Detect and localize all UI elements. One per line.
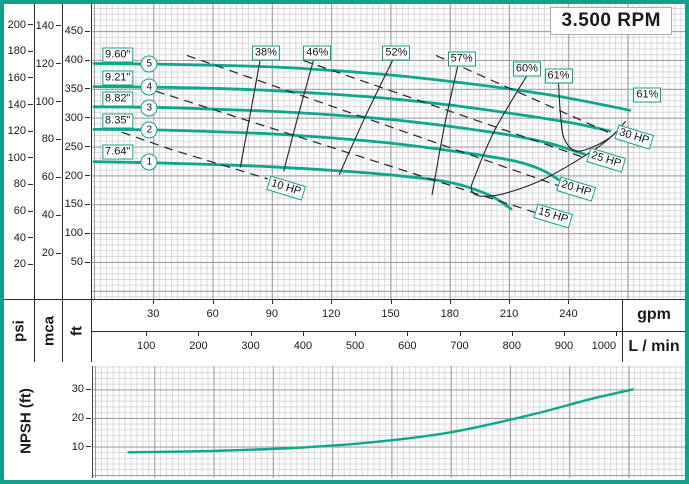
l-min-tickmark-400 [303, 332, 304, 336]
gpm-tick-240: 240 [559, 308, 577, 320]
npsh-plot-area [92, 366, 686, 478]
l-min-tick-900: 900 [555, 340, 573, 352]
ft-tick-50: 50 [71, 256, 90, 268]
main-plot-area: 3.500 RPM 543219.60"9.21"8.82"8.35"7.64"… [92, 4, 685, 299]
psi-tick-160: 160 [8, 72, 33, 84]
l-min-tickmark-600 [407, 332, 408, 336]
psi-tick-60: 60 [14, 205, 33, 217]
impeller-number-badge-5: 5 [141, 55, 158, 72]
curve-label-7-64: 7.64" [102, 145, 133, 160]
ft-axis-column: 45040035030025020015010050 [63, 4, 92, 299]
l-min-tick-800: 800 [503, 340, 521, 352]
power-15hp [141, 87, 536, 213]
l-min-tick-200: 200 [189, 340, 207, 352]
npsh-ft-tick-10: 10 [72, 441, 91, 453]
gpm-tick-210: 210 [500, 308, 518, 320]
npsh-axis-column: NPSH (ft) 302010 [4, 362, 92, 480]
psi-tick-180: 180 [8, 45, 33, 57]
mca-unit-label: mca [40, 316, 57, 346]
ft-tick-200: 200 [65, 170, 90, 182]
gpm-unit-label: gpm [623, 300, 685, 331]
curve-label-61: 61% [633, 87, 661, 102]
lmin-unit-label: L / min [623, 331, 685, 363]
ft-tick-100: 100 [65, 227, 90, 239]
psi-unit-label: psi [11, 320, 28, 342]
gpm-tickmark-180 [450, 300, 451, 304]
npsh-chart-band: NPSH (ft) 302010 [4, 362, 685, 480]
efficiency-57pct [432, 66, 458, 195]
flow-axis-band: psi mca ft 306090120150180210240 1002003… [4, 299, 685, 363]
gpm-tick-30: 30 [147, 308, 159, 320]
curve-label-8-35: 8.35" [102, 114, 133, 129]
ft-tick-400: 400 [65, 54, 90, 66]
l-min-tick-100: 100 [137, 340, 155, 352]
gpm-tick-180: 180 [441, 308, 459, 320]
l-min-tickmark-100 [146, 332, 147, 336]
efficiency-46pct [284, 61, 314, 172]
mca-tick-80: 80 [42, 133, 61, 145]
lmin-tick-row: 1002003004005006007008009001000 [92, 331, 685, 363]
psi-tick-100: 100 [8, 152, 33, 164]
flow-units-cell: gpm L / min [622, 300, 685, 362]
l-min-tick-400: 400 [294, 340, 312, 352]
ft-unit-cell: ft [63, 300, 92, 362]
ft-tick-250: 250 [65, 141, 90, 153]
mca-axis-column: 14012010080604020 [35, 4, 63, 299]
curve-label-46: 46% [303, 45, 331, 60]
curve-label-38: 38% [252, 45, 280, 60]
l-min-tick-1000: 1000 [592, 340, 616, 352]
efficiency-61pct [559, 83, 626, 152]
mca-unit-cell: mca [35, 300, 63, 362]
l-min-tickmark-300 [251, 332, 252, 336]
gpm-tickmark-90 [272, 300, 273, 304]
impeller-number-badge-4: 4 [141, 78, 158, 95]
gpm-tick-60: 60 [206, 308, 218, 320]
flow-axis-area: 306090120150180210240 100200300400500600… [92, 300, 685, 362]
gpm-tick-row: 306090120150180210240 [92, 300, 685, 331]
main-chart-band: 20018016014012010080604020 1401201008060… [4, 4, 685, 299]
gpm-tickmark-210 [509, 300, 510, 304]
mca-tick-140: 140 [36, 20, 61, 32]
ft-unit-label: ft [69, 326, 86, 336]
curve-label-57: 57% [448, 52, 476, 67]
ft-tick-350: 350 [65, 83, 90, 95]
l-min-tick-600: 600 [398, 340, 416, 352]
impeller-number-badge-3: 3 [141, 99, 158, 116]
curve-label-52: 52% [382, 45, 410, 60]
impeller-curve-2-8.35in [94, 129, 559, 179]
psi-tick-80: 80 [14, 178, 33, 190]
ft-tick-300: 300 [65, 112, 90, 124]
gpm-tick-90: 90 [266, 308, 278, 320]
psi-axis-column: 20018016014012010080604020 [4, 4, 35, 299]
efficiency-38pct [240, 61, 260, 168]
psi-unit-cell: psi [4, 300, 35, 362]
ft-tick-450: 450 [65, 25, 90, 37]
rpm-title: 3.500 RPM [550, 7, 672, 35]
curve-label-61: 61% [544, 68, 572, 83]
gpm-tickmark-150 [391, 300, 392, 304]
l-min-tickmark-800 [512, 332, 513, 336]
psi-tick-120: 120 [8, 125, 33, 137]
gpm-tickmark-60 [213, 300, 214, 304]
l-min-tickmark-500 [355, 332, 356, 336]
npsh-ft-tick-30: 30 [72, 383, 91, 395]
npsh-ft-tick-20: 20 [72, 412, 91, 424]
ft-tick-150: 150 [65, 198, 90, 210]
l-min-tickmark-700 [460, 332, 461, 336]
psi-tick-20: 20 [14, 258, 33, 270]
l-min-tickmark-200 [198, 332, 199, 336]
curve-label-9-60: 9.60" [102, 48, 133, 63]
npsh-required-curve [129, 389, 633, 452]
psi-tick-40: 40 [14, 232, 33, 244]
mca-tick-60: 60 [42, 171, 61, 183]
gpm-tickmark-30 [153, 300, 154, 304]
l-min-tick-500: 500 [346, 340, 364, 352]
impeller-number-badge-2: 2 [141, 122, 158, 139]
mca-tick-120: 120 [36, 58, 61, 70]
l-min-tickmark-900 [564, 332, 565, 336]
gpm-tick-120: 120 [322, 308, 340, 320]
chart-curves-svg [93, 366, 686, 478]
mca-tick-20: 20 [42, 247, 61, 259]
gpm-tick-150: 150 [381, 308, 399, 320]
psi-tick-200: 200 [8, 19, 33, 31]
pump-performance-figure: 20018016014012010080604020 1401201008060… [0, 0, 689, 484]
gpm-tickmark-120 [331, 300, 332, 304]
impeller-number-badge-1: 1 [141, 153, 158, 170]
curve-label-8-82: 8.82" [102, 91, 133, 106]
psi-tick-140: 140 [8, 99, 33, 111]
gpm-tickmark-240 [568, 300, 569, 304]
npsh-axis-label: NPSH (ft) [18, 388, 35, 454]
l-min-tickmark-1000 [616, 332, 617, 336]
mca-tick-40: 40 [42, 209, 61, 221]
l-min-tick-300: 300 [241, 340, 259, 352]
curve-label-60: 60% [513, 61, 541, 76]
curve-label-9-21: 9.21" [102, 70, 133, 85]
mca-tick-100: 100 [36, 96, 61, 108]
l-min-tick-700: 700 [450, 340, 468, 352]
power-25hp [304, 61, 585, 158]
